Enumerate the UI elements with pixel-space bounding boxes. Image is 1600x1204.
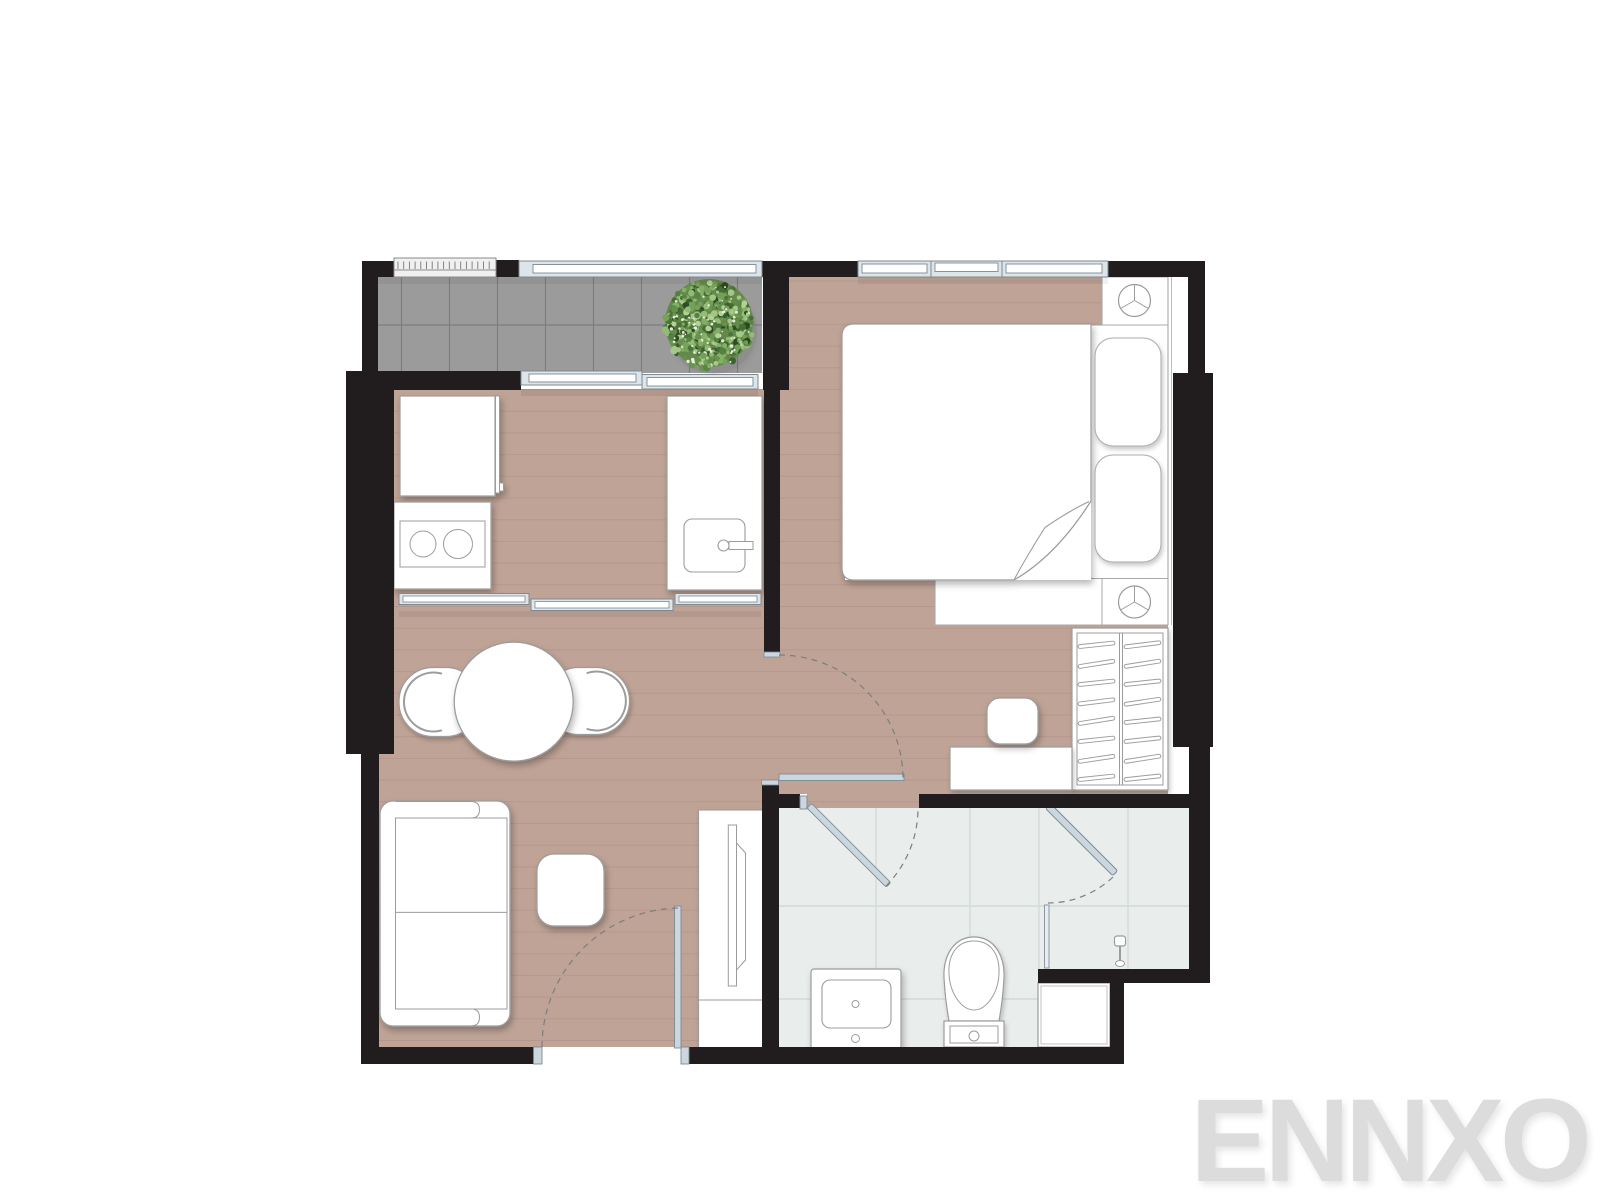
svg-text:ENNXO: ENNXO [1191,1075,1588,1204]
